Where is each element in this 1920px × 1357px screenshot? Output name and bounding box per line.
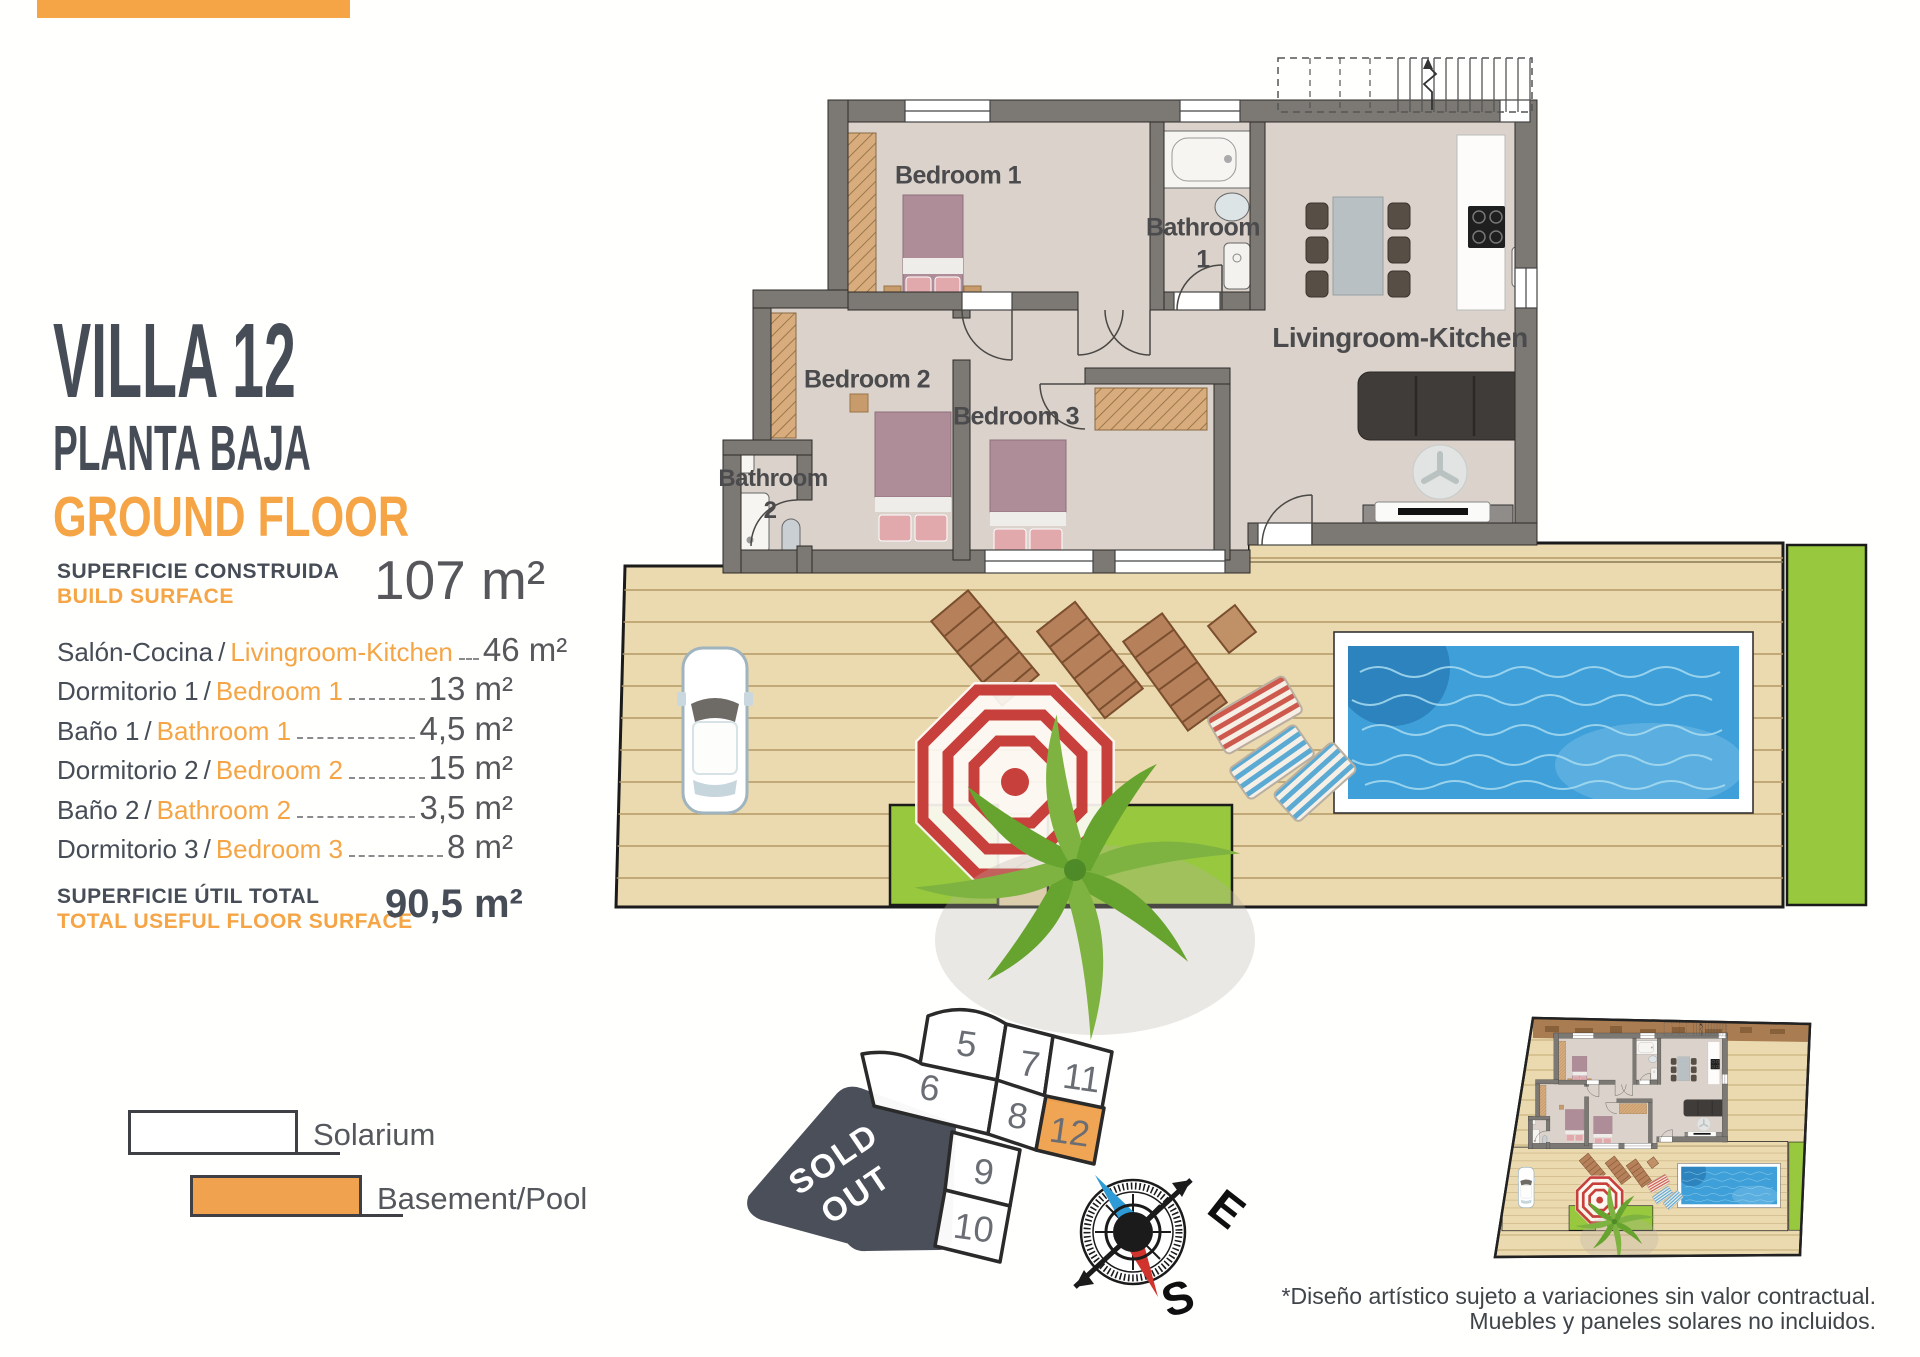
bedroom3-label: Bedroom 3 — [953, 403, 1079, 432]
livingroom-kitchen-label: Livingroom-Kitchen — [1272, 322, 1527, 354]
pool — [1334, 610, 1753, 813]
car — [677, 648, 753, 813]
bathroom1-label: Bathroom — [1146, 214, 1260, 243]
dining-table — [1333, 197, 1383, 295]
bathroom1-number: 1 — [1196, 246, 1209, 275]
plot-number: 10 — [951, 1205, 996, 1251]
car-mirror — [744, 692, 753, 706]
villa-scene — [600, 58, 1866, 1041]
bathroom2-number: 2 — [764, 497, 777, 525]
plot-number: 11 — [1060, 1055, 1103, 1101]
compass-south-label: S — [1155, 1269, 1200, 1328]
bathtub-icon — [1164, 131, 1250, 188]
car-mirror — [677, 692, 686, 706]
sofa — [1358, 372, 1532, 440]
bedroom2-label: Bedroom 2 — [804, 366, 930, 395]
bedroom1-label: Bedroom 1 — [895, 162, 1021, 191]
disclaimer-line-2: Muebles y paneles solares no incluidos. — [1469, 1308, 1876, 1335]
disclaimer-line-1: *Diseño artístico sujeto a variaciones s… — [1282, 1283, 1876, 1310]
compass-east-label: E — [1199, 1179, 1255, 1239]
site-plan-graphic: 5 6 7 8 9 10 11 12 SOLD OUT — [0, 0, 1920, 1357]
washbasin-icon — [1224, 243, 1250, 289]
mini-site-plan — [1490, 1018, 1815, 1263]
plot-map: 5 6 7 8 9 10 11 12 SOLD OUT — [751, 1010, 1112, 1262]
bathroom2-label: Bathroom — [718, 465, 827, 493]
plot-number: 12 — [1047, 1109, 1092, 1155]
brochure-page: VILLA 12 PLANTA BAJA GROUND FLOOR SUPERF… — [0, 0, 1920, 1357]
compass-rose: E S — [1075, 1175, 1255, 1328]
lawn-right — [1787, 545, 1866, 905]
